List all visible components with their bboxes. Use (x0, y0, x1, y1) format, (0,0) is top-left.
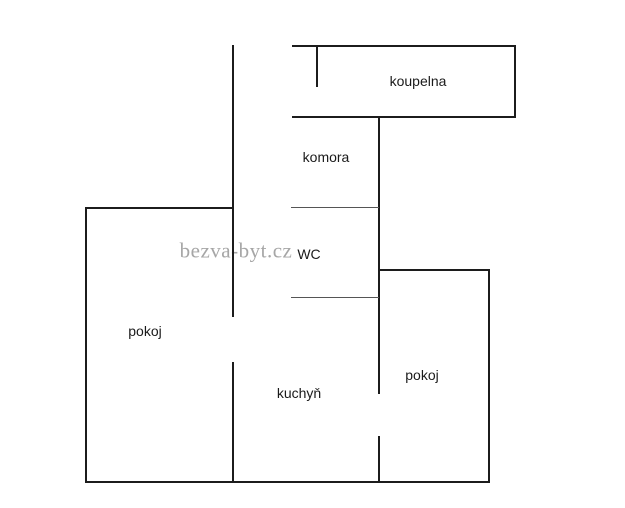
room-label-pokoj-right: pokoj (405, 367, 438, 383)
koupelna-top-wall-wall-segment (292, 45, 516, 47)
komora-wc-divider-wall-segment (291, 207, 379, 208)
pokoj-left-top-wall-wall-segment (85, 207, 233, 209)
right-mid-wall-lower-wall-segment (378, 436, 380, 483)
pokoj-right-top-wall-wall-segment (378, 269, 490, 271)
watermark-text: bezva-byt.cz (180, 239, 293, 264)
left-outer-wall-wall-segment (85, 207, 87, 483)
room-label-wc: WC (297, 246, 320, 262)
corridor-wall-lower-wall-segment (232, 362, 234, 483)
room-label-koupelna: koupelna (390, 73, 447, 89)
bottom-outer-wall-wall-segment (85, 481, 490, 483)
wc-bottom-divider-wall-segment (291, 297, 379, 298)
corridor-wall-upper-wall-segment (232, 45, 234, 317)
right-outer-wall-wall-segment (488, 269, 490, 483)
koupelna-bottom-wall-wall-segment (292, 116, 516, 118)
room-label-komora: komora (303, 149, 350, 165)
room-label-kuchyn: kuchyň (277, 385, 321, 401)
koupelna-right-wall-wall-segment (514, 45, 516, 118)
right-mid-wall-upper-wall-segment (378, 116, 380, 394)
koupelna-entry-wall-wall-segment (316, 45, 318, 87)
room-label-pokoj-left: pokoj (128, 323, 161, 339)
floor-plan: bezva-byt.cz koupelnakomoraWCpokojkuchyň… (0, 0, 625, 508)
